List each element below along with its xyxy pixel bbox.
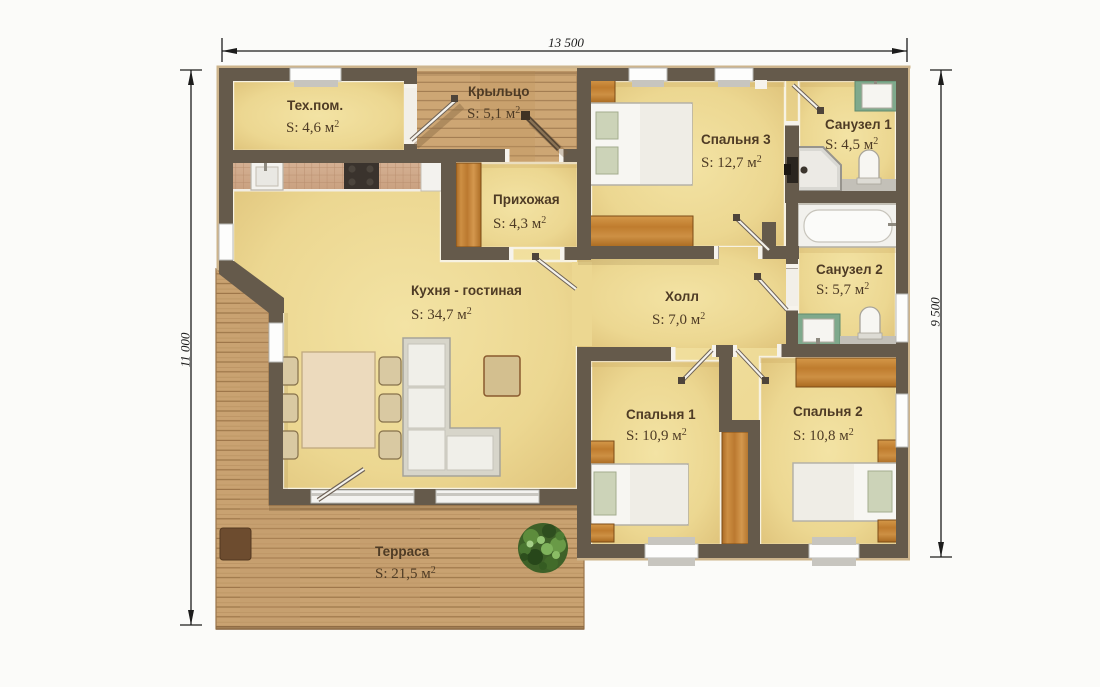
svg-text:Крыльцо: Крыльцо bbox=[468, 84, 529, 99]
svg-text:Тех.пом.: Тех.пом. bbox=[287, 98, 343, 113]
svg-text:S: 4,6 м2: S: 4,6 м2 bbox=[286, 119, 339, 136]
svg-text:Холл: Холл bbox=[665, 289, 699, 304]
svg-text:Санузел 2: Санузел 2 bbox=[816, 262, 883, 277]
svg-text:9 500: 9 500 bbox=[928, 297, 943, 327]
svg-text:Санузел 1: Санузел 1 bbox=[825, 117, 892, 132]
svg-text:S: 10,9 м2: S: 10,9 м2 bbox=[626, 427, 687, 444]
svg-text:S: 34,7 м2: S: 34,7 м2 bbox=[411, 306, 472, 323]
svg-text:S: 5,7 м2: S: 5,7 м2 bbox=[816, 281, 869, 298]
svg-text:Терраса: Терраса bbox=[375, 544, 430, 559]
svg-text:Кухня - гостиная: Кухня - гостиная bbox=[411, 283, 522, 298]
svg-text:11 000: 11 000 bbox=[178, 332, 193, 367]
svg-text:S: 4,3 м2: S: 4,3 м2 bbox=[493, 215, 546, 232]
svg-text:13 500: 13 500 bbox=[548, 35, 584, 50]
svg-text:S: 5,1 м2: S: 5,1 м2 bbox=[467, 105, 520, 122]
svg-text:S: 10,8 м2: S: 10,8 м2 bbox=[793, 427, 854, 444]
svg-text:Спальня 2: Спальня 2 bbox=[793, 404, 863, 419]
svg-text:Спальня 3: Спальня 3 bbox=[701, 132, 771, 147]
svg-text:S: 4,5 м2: S: 4,5 м2 bbox=[825, 136, 878, 153]
svg-text:S: 21,5 м2: S: 21,5 м2 bbox=[375, 565, 436, 582]
svg-text:Прихожая: Прихожая bbox=[493, 192, 560, 207]
svg-text:Спальня 1: Спальня 1 bbox=[626, 407, 696, 422]
svg-text:S: 12,7 м2: S: 12,7 м2 bbox=[701, 154, 762, 171]
svg-text:S: 7,0 м2: S: 7,0 м2 bbox=[652, 311, 705, 328]
